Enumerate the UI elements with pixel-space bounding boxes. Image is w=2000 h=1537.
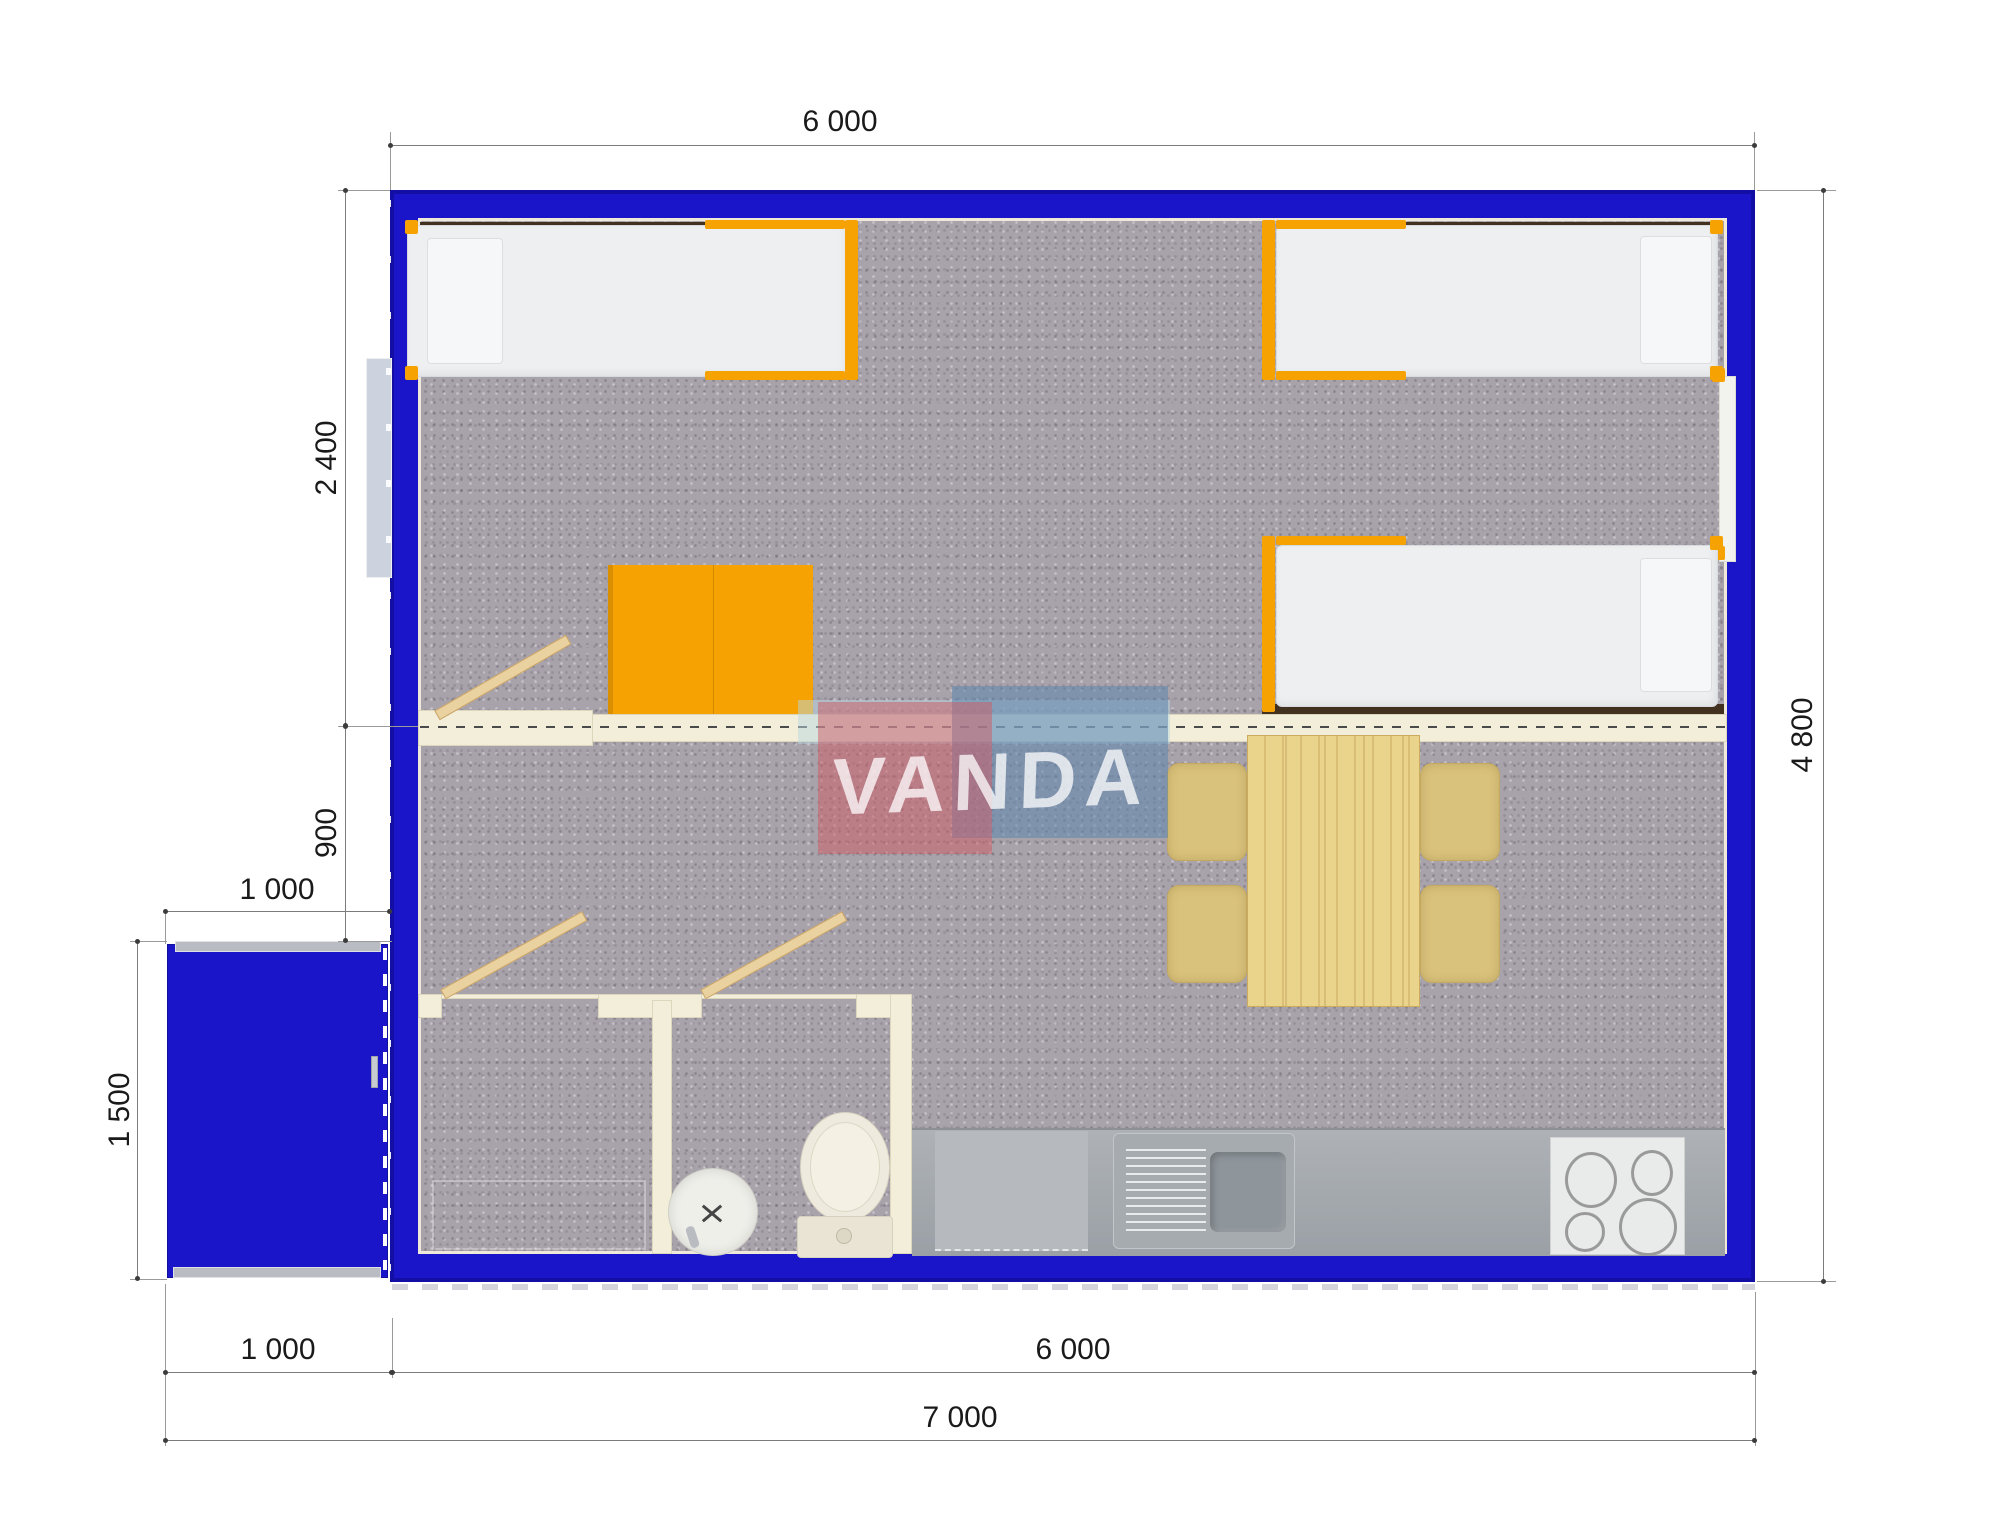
dining-chair (1420, 885, 1500, 983)
stove-hob (1550, 1137, 1685, 1255)
burner-icon (1565, 1152, 1617, 1208)
bed-mid-right (1262, 536, 1724, 712)
bed-pillow (427, 238, 503, 364)
kitchen-sink-unit (1113, 1133, 1295, 1249)
dining-chair (1167, 763, 1247, 861)
dim-label-bottom-porch: 1 000 (188, 1332, 368, 1368)
bed-side-rail (1276, 220, 1406, 229)
bed-headboard-rail (1262, 220, 1275, 380)
porch (167, 944, 388, 1278)
extension-line (1755, 1292, 1756, 1446)
dim-label-bottom-building: 6 000 (983, 1332, 1163, 1368)
kitchen-cabinet-panel (935, 1131, 1088, 1251)
burner-icon (1565, 1212, 1605, 1252)
toilet-flush-button (836, 1228, 852, 1244)
burner-icon (1631, 1150, 1673, 1196)
bed-corner-post (405, 366, 418, 380)
bed-side-rail (705, 371, 845, 380)
dim-label-bedroom-depth: 2 400 (309, 368, 345, 548)
dim-label-top-width: 6 000 (750, 104, 930, 140)
bottom-wall-dash-marks (392, 1284, 1755, 1290)
bed-corner-post (405, 220, 418, 234)
bed-corner-post (1710, 536, 1723, 550)
bed-pillow (1640, 558, 1712, 692)
dim-line-bottom-porch (165, 1372, 392, 1373)
bed-top-right (1262, 220, 1724, 380)
dim-line-right-depth (1823, 190, 1824, 1282)
dining-chair (1420, 763, 1500, 861)
entrance-door-dashed-line (383, 948, 387, 1270)
dim-line-corridor-depth (345, 726, 346, 941)
bed-corner-post (1710, 366, 1723, 380)
desk-seam (713, 565, 714, 715)
shower-tray (432, 1180, 646, 1250)
bed-corner-post (1710, 220, 1723, 234)
extension-line (338, 726, 418, 727)
right-wall-window (1719, 376, 1736, 562)
wc-kitchen-divider-wall (890, 994, 912, 1254)
sink-drainer-ribs (1126, 1149, 1206, 1233)
orange-desk (608, 565, 813, 715)
extension-line (1754, 132, 1755, 190)
bed-side-rail (1276, 536, 1406, 545)
dim-line-bedroom-depth (345, 190, 346, 726)
extension-line (165, 1284, 166, 1446)
floor-plan-canvas: VANDA 6 000 4 800 2 400 900 1 000 1 500 … (0, 0, 2000, 1537)
toilet-lid (810, 1122, 880, 1212)
porch-step-top (175, 941, 381, 952)
bed-side-rail (1276, 371, 1406, 380)
dining-chair (1167, 885, 1247, 983)
watermark-text: VANDA (830, 730, 1152, 833)
dim-label-porch-width: 1 000 (187, 872, 367, 908)
dim-line-bottom-building (392, 1372, 1755, 1373)
bed-headboard-rail (1262, 536, 1275, 712)
burner-icon (1619, 1198, 1677, 1256)
dim-line-top-width (390, 145, 1755, 146)
dim-line-porch-width (165, 911, 390, 912)
dim-label-right-depth: 4 800 (1785, 645, 1821, 825)
bathroom-wall-segment (418, 994, 442, 1018)
dim-label-total-width: 7 000 (870, 1400, 1050, 1436)
bed-headboard-rail (845, 220, 858, 380)
bed-pillow (1640, 236, 1712, 364)
extension-line (392, 1318, 393, 1378)
sink-basin (1210, 1152, 1286, 1232)
dim-label-porch-depth: 1 500 (102, 1020, 138, 1200)
porch-step-bottom (173, 1267, 381, 1278)
dim-line-total-width (165, 1440, 1755, 1441)
bed-top-left (405, 220, 860, 380)
dining-table (1247, 735, 1420, 1007)
bathroom-wall-segment (598, 994, 702, 1018)
extension-line (165, 911, 166, 944)
entrance-door-handle (371, 1056, 378, 1088)
bed-side-rail (705, 220, 845, 229)
extension-line (390, 132, 391, 190)
